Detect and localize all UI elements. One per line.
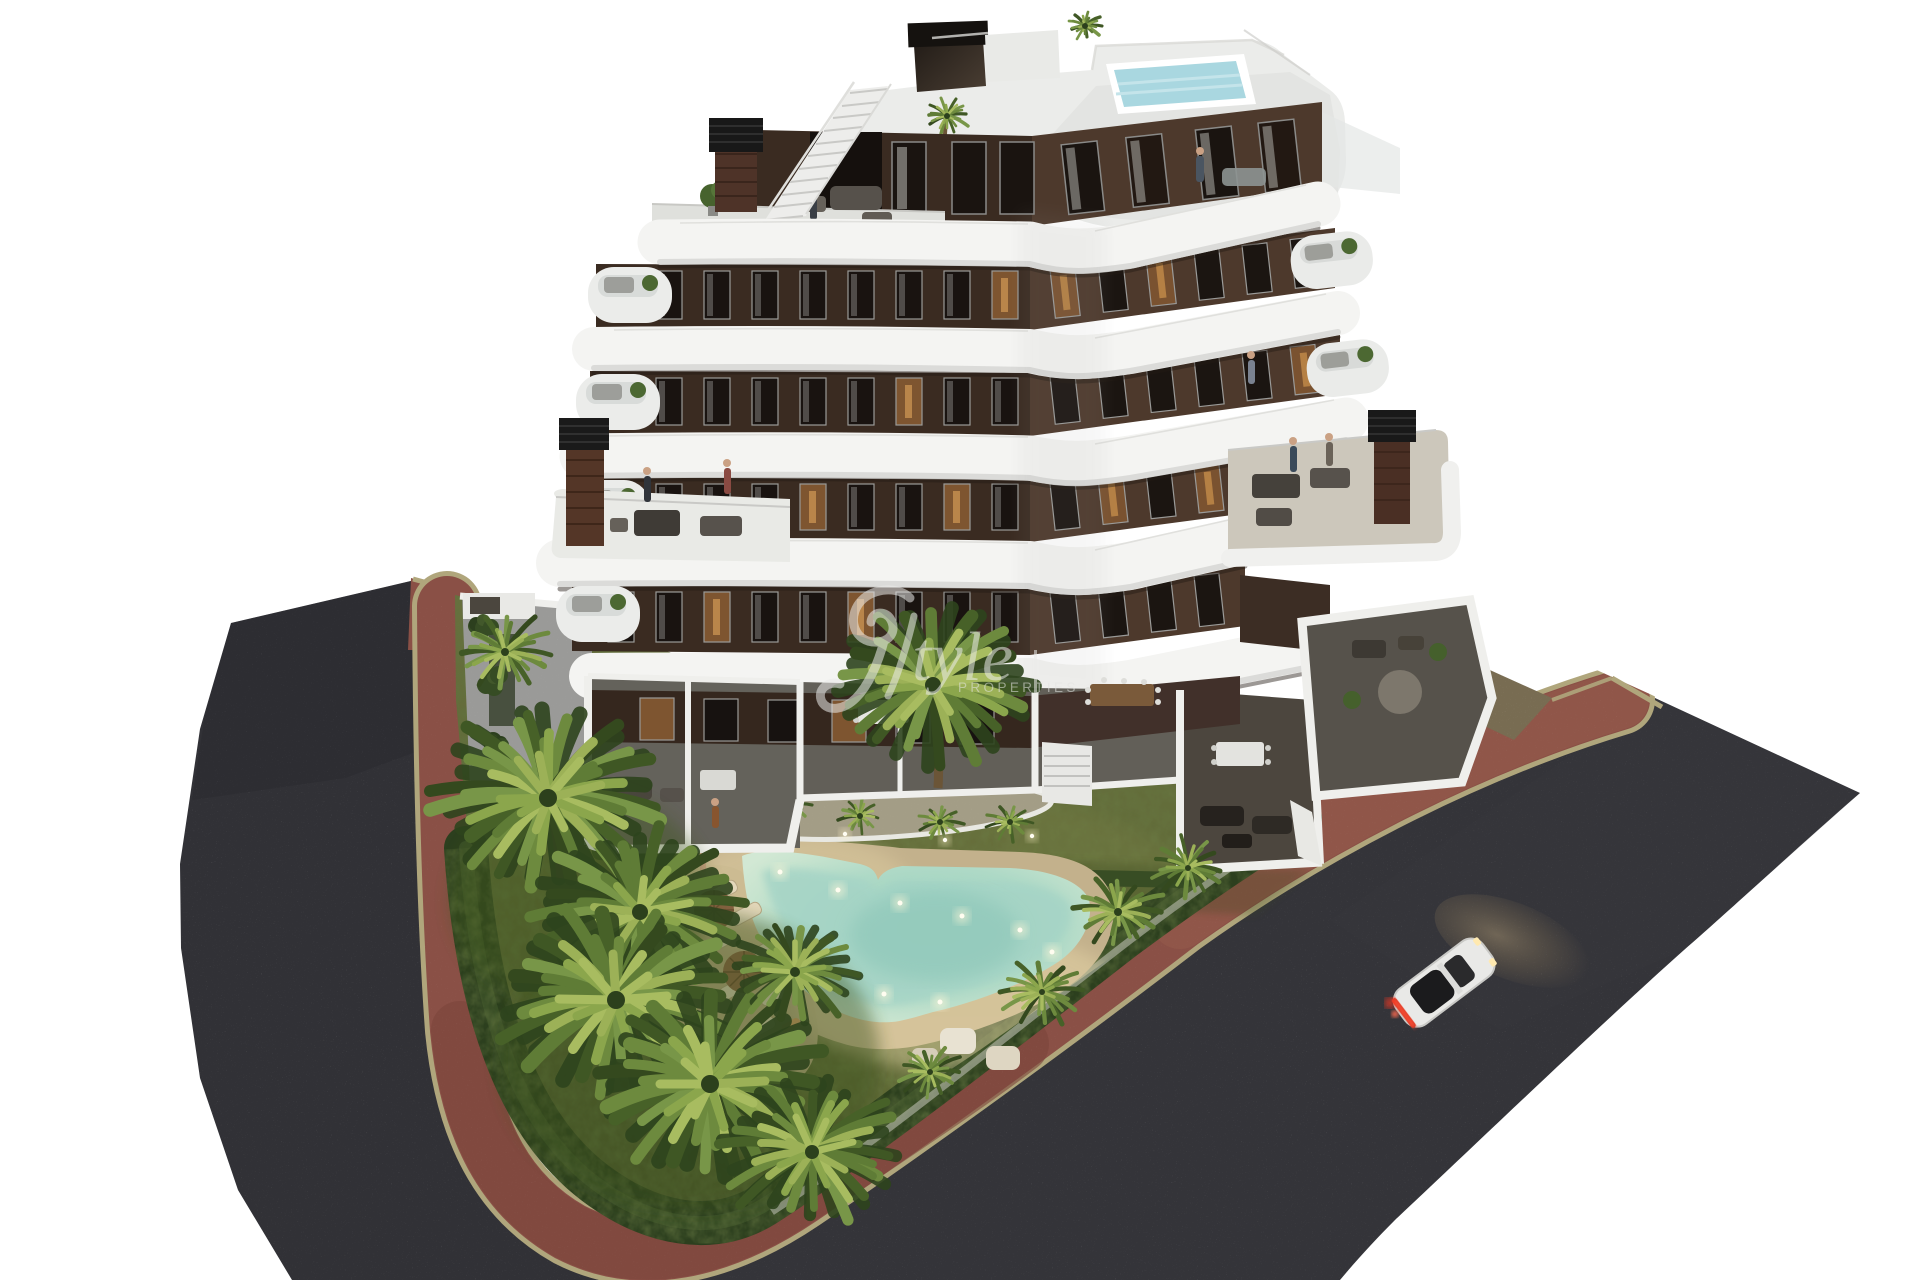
svg-text:PROPERTIES: PROPERTIES [958, 680, 1079, 695]
